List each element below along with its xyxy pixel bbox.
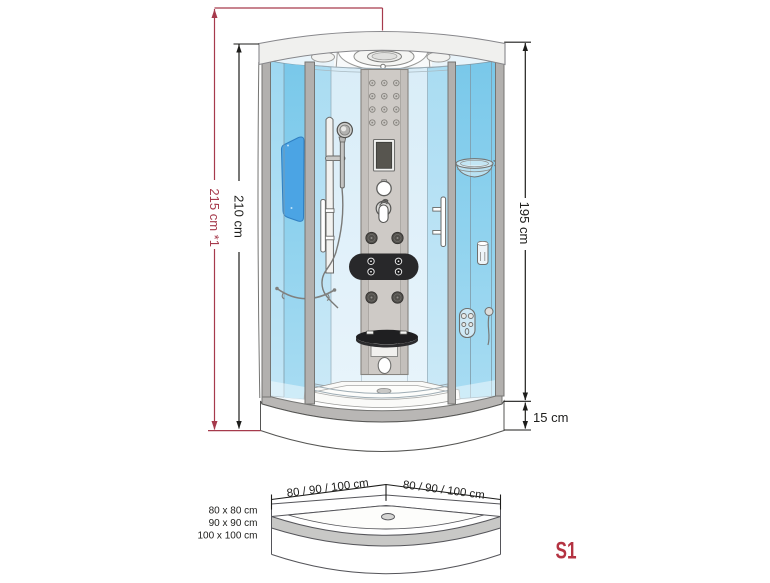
- svg-text:210 cm: 210 cm: [232, 195, 247, 238]
- svg-text:100 x 100 cm: 100 x 100 cm: [197, 531, 257, 542]
- svg-text:195 cm: 195 cm: [517, 202, 532, 245]
- svg-text:80 x 80 cm: 80 x 80 cm: [209, 506, 258, 517]
- svg-text:215 cm *1: 215 cm *1: [207, 188, 222, 247]
- svg-text:90 x 90 cm: 90 x 90 cm: [209, 518, 258, 529]
- svg-text:15 cm: 15 cm: [533, 410, 568, 425]
- svg-text:S1: S1: [556, 538, 577, 565]
